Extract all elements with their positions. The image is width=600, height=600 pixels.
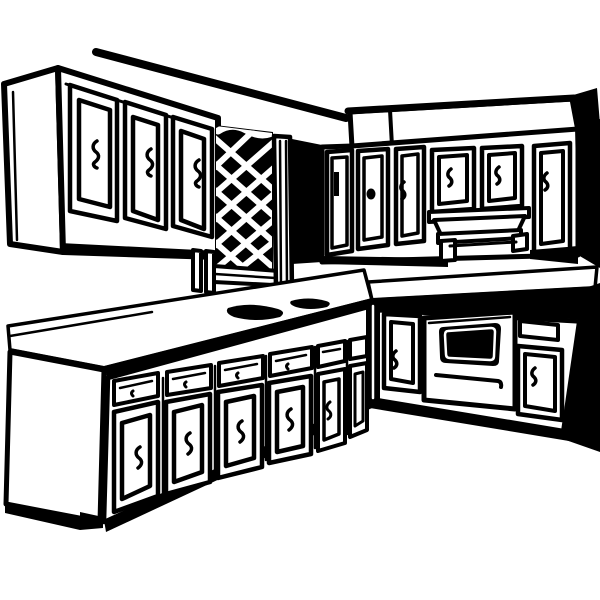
lattice-post [193, 250, 201, 291]
cabinet-door [358, 149, 388, 249]
upper-right-cabinets [292, 119, 600, 268]
upper-right-end-panel [575, 119, 600, 268]
cabinet-door [327, 150, 352, 255]
cabinet-door [396, 147, 424, 244]
cabinet-door [114, 402, 158, 512]
cabinet-door [384, 314, 420, 392]
cabinet-door [269, 376, 311, 463]
cabinet-door [166, 394, 210, 494]
cabinet-door [518, 346, 562, 420]
hood-leg [441, 240, 455, 261]
cabinet-door [534, 143, 570, 252]
drawer [350, 337, 367, 359]
drawer-handle [185, 382, 187, 387]
cabinet-door [432, 148, 474, 212]
corner-shadow [292, 139, 322, 264]
upper-left-cabinet [4, 68, 218, 260]
drawer-handle [287, 364, 289, 369]
door-handle [367, 189, 376, 200]
lattice-pillar [274, 136, 292, 291]
base-left-end-panel [6, 352, 104, 522]
cabinet-door [173, 117, 212, 237]
cabinet-door [125, 102, 166, 229]
oven [424, 312, 515, 409]
door-handle [334, 172, 339, 196]
drawer [318, 341, 345, 367]
cabinet-door [350, 363, 367, 437]
drawer-handle [132, 391, 134, 396]
drawer [167, 365, 211, 395]
drawer-handle [237, 373, 239, 378]
cabinet-door [318, 369, 345, 451]
kitchen-line-art: Kitchen cabinets line-art illustration [0, 0, 600, 600]
cabinet-door [218, 385, 262, 478]
drawer [520, 321, 558, 340]
cabinet-door [482, 146, 522, 209]
kitchen-illustration: Black-and-white retro clip-art drawing o… [0, 0, 600, 600]
cabinet-door [70, 85, 117, 221]
